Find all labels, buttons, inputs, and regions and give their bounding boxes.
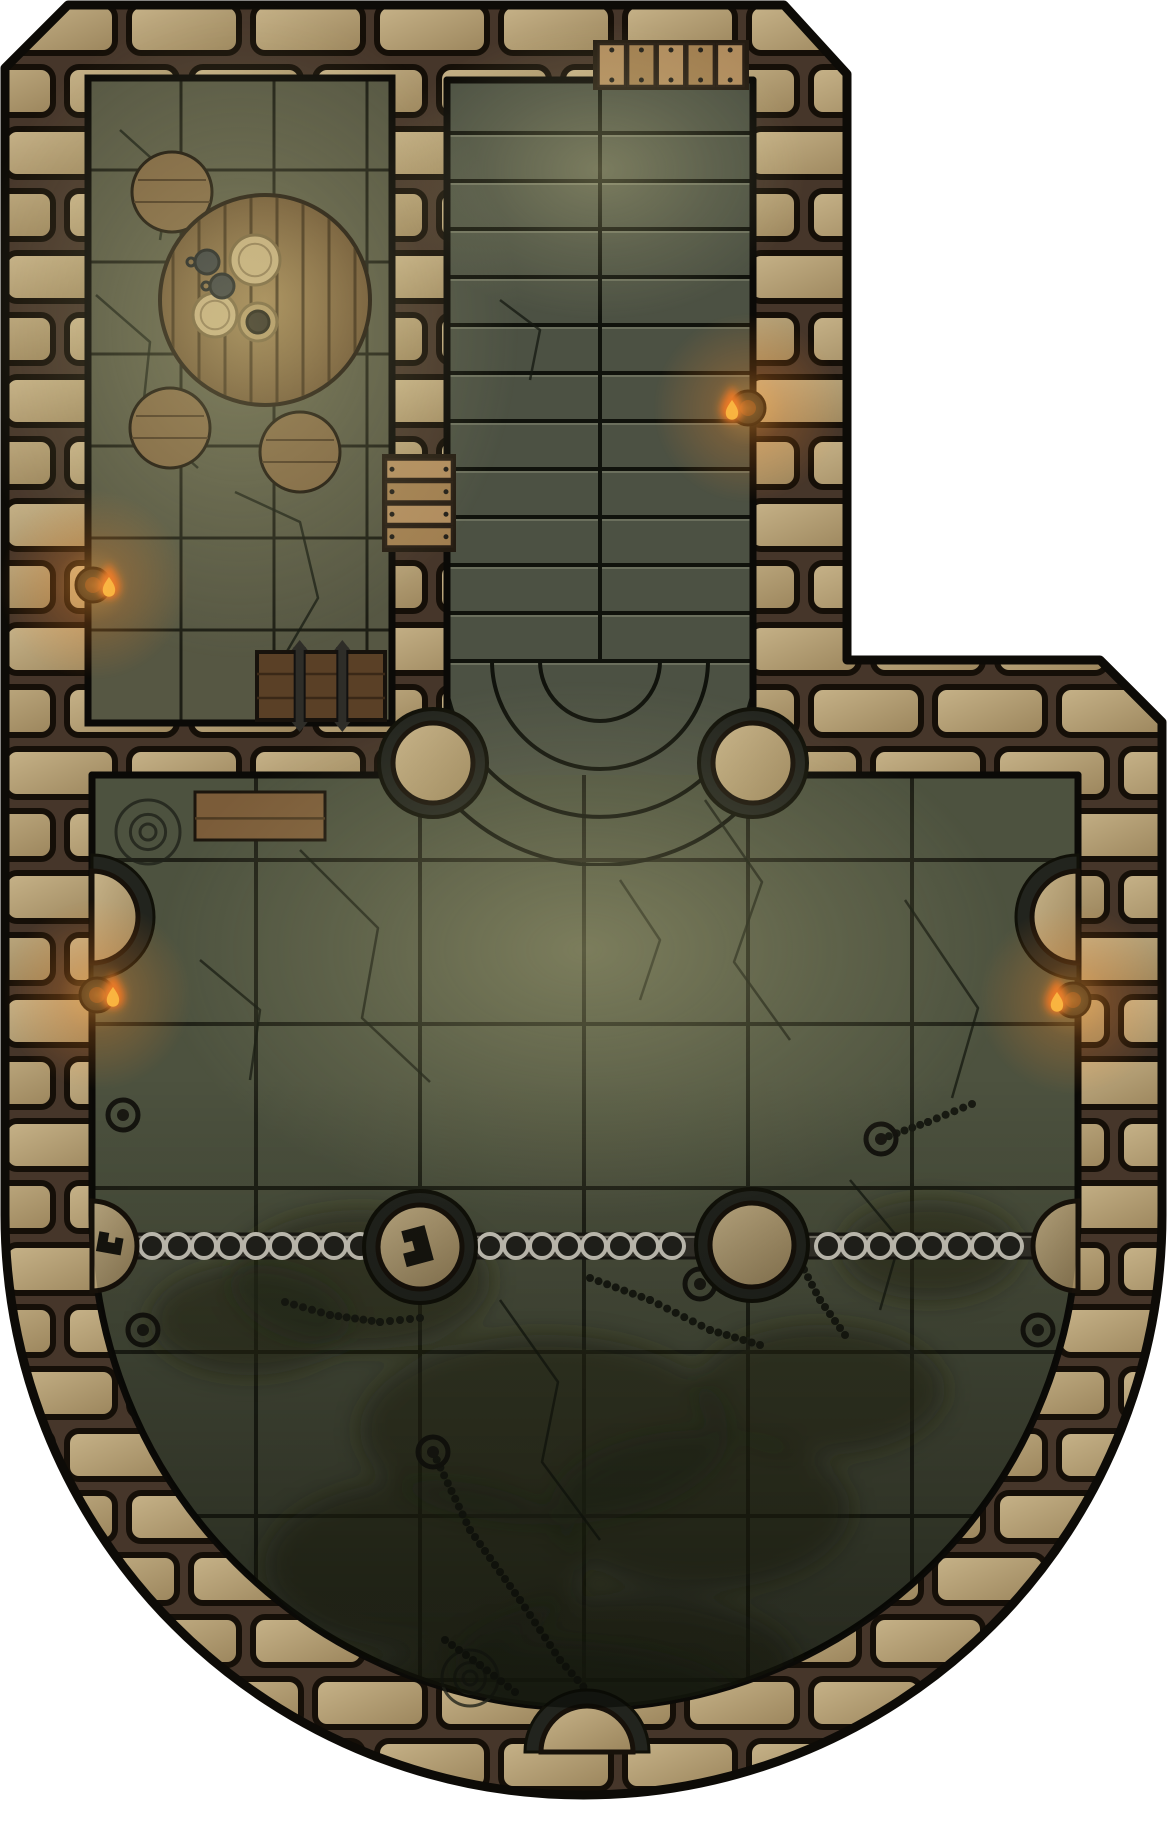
chest-body — [257, 652, 385, 720]
chest-strap — [295, 648, 305, 724]
lighting-overlay — [0, 0, 1167, 1708]
stair-light-pool — [390, 20, 810, 320]
torch-glow — [0, 490, 188, 680]
dungeon-battle-map — [0, 0, 1167, 1830]
torch-glow — [2, 900, 192, 1090]
map-canvas — [0, 0, 1167, 1830]
torch-glow — [653, 313, 843, 503]
hall-light-pool — [155, 680, 1015, 1220]
chest-strap — [337, 648, 347, 724]
torch-glow — [978, 905, 1167, 1095]
